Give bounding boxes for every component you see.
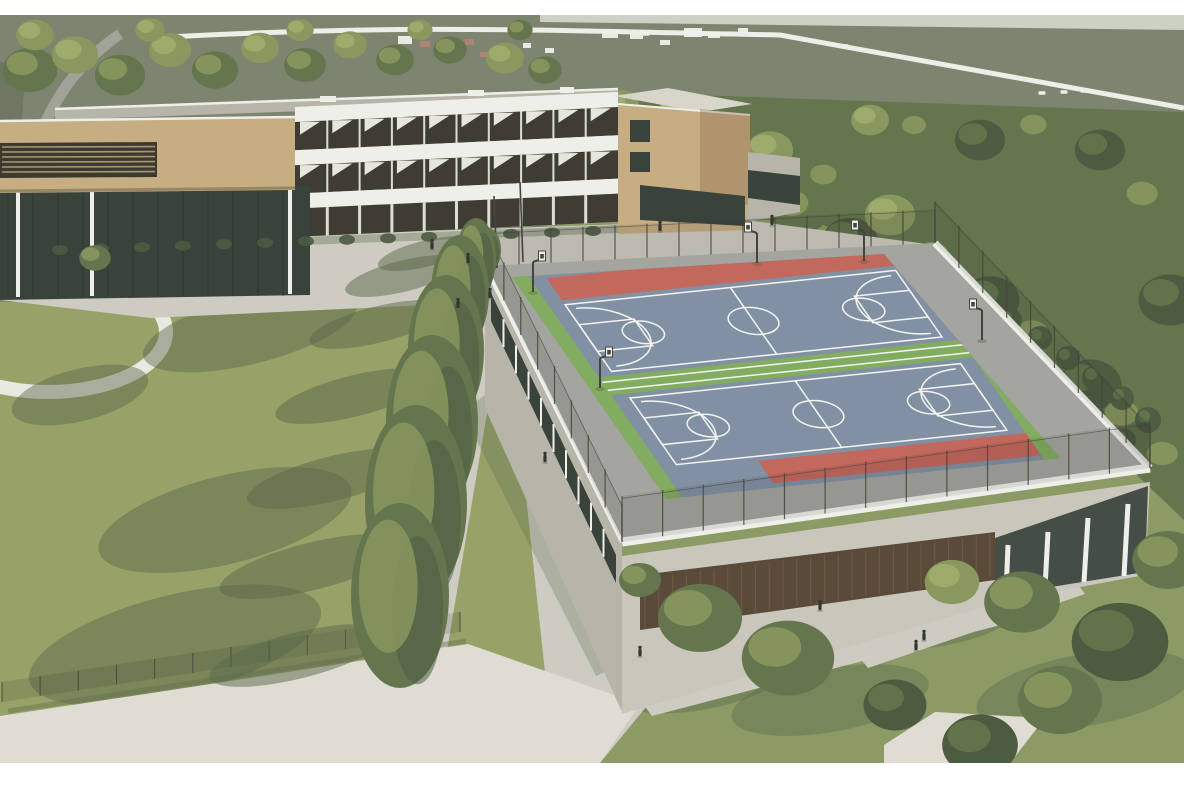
person-figure (638, 649, 641, 656)
tree-canopy-highlight (1024, 672, 1072, 708)
car (697, 32, 704, 36)
person-figure (658, 224, 661, 231)
village-building (708, 32, 720, 38)
top-margin (0, 0, 1184, 15)
tree-canopy-highlight (137, 20, 154, 33)
person-figure (770, 218, 773, 225)
person-head (456, 298, 459, 301)
person-figure (914, 643, 917, 650)
shrub (175, 241, 191, 251)
tree-canopy-highlight (1147, 442, 1178, 465)
person-shadow (637, 656, 642, 658)
person-head (466, 253, 469, 256)
village-building (523, 43, 531, 48)
tree-canopy-highlight (98, 58, 127, 80)
car (1039, 91, 1046, 95)
village-building (398, 36, 412, 44)
tree-canopy-highlight (531, 59, 550, 73)
village-building (738, 28, 748, 33)
tree-canopy-highlight (990, 577, 1033, 609)
village-building (465, 39, 474, 45)
facade-floors (295, 92, 618, 237)
car (609, 31, 616, 35)
person-head (922, 630, 925, 633)
tree-canopy-highlight (1079, 610, 1134, 651)
person-shadow (465, 263, 470, 265)
tree-canopy-highlight (379, 47, 401, 63)
tree-canopy-highlight (868, 684, 904, 711)
tree-canopy-highlight (854, 107, 876, 123)
backboard-target (971, 302, 975, 307)
tree-canopy-highlight (748, 627, 801, 667)
tree-canopy-highlight (810, 165, 836, 185)
end-block-window (630, 152, 650, 172)
person-head (638, 646, 641, 649)
person-shadow (769, 225, 774, 227)
person-shadow (542, 462, 547, 464)
person-figure (456, 301, 459, 308)
scene (0, 15, 1184, 776)
end-block-window (630, 120, 650, 142)
person-figure (818, 603, 821, 610)
person-figure (488, 291, 491, 298)
tree-canopy-highlight (287, 51, 311, 69)
person-shadow (429, 249, 434, 251)
shrub (52, 245, 68, 255)
tree-canopy-highlight (55, 40, 81, 60)
bottom-margin (0, 763, 1184, 790)
tree-canopy-highlight (1020, 115, 1046, 135)
person-figure (543, 455, 546, 462)
tree-canopy-highlight (948, 720, 991, 752)
shrub (298, 236, 314, 246)
car (643, 32, 650, 36)
render-viewport (0, 0, 1184, 790)
person-head (770, 215, 773, 218)
backboard-target (853, 223, 857, 228)
tree-canopy-highlight (1137, 536, 1178, 567)
tree-canopy-highlight (7, 52, 38, 75)
tree-canopy-highlight (244, 35, 266, 51)
backboard-target (607, 350, 611, 355)
person-shadow (455, 308, 460, 310)
village-building (660, 40, 670, 45)
shrub (216, 239, 232, 249)
tree-canopy-highlight (409, 22, 423, 33)
car (842, 44, 849, 48)
tree-canopy-highlight (19, 22, 41, 38)
person-head (543, 452, 546, 455)
tree-canopy-highlight (664, 590, 712, 626)
village-building (420, 41, 430, 47)
person-figure (430, 242, 433, 249)
campus-render (0, 0, 1184, 790)
village-building (630, 33, 643, 39)
person-figure (922, 633, 925, 640)
person-shadow (921, 640, 926, 642)
rooftop-unit (468, 90, 484, 96)
rooftop-unit (320, 96, 336, 102)
tree-canopy-highlight (750, 135, 776, 155)
car (1081, 89, 1088, 93)
tree-canopy-highlight (622, 566, 646, 584)
person-shadow (487, 298, 492, 300)
tree-canopy-highlight (489, 45, 511, 61)
tree-canopy-highlight (336, 34, 355, 48)
tree-canopy-highlight (1078, 133, 1107, 155)
shrub (339, 235, 355, 245)
tree-canopy-highlight (958, 123, 987, 145)
tree-canopy-highlight (929, 564, 960, 587)
person-head (818, 600, 821, 603)
person-head (488, 288, 491, 291)
tree-canopy-highlight (1143, 279, 1179, 306)
backboard-target (540, 254, 544, 259)
tree-canopy-highlight (436, 39, 455, 53)
person-figure (466, 256, 469, 263)
person-head (658, 221, 661, 224)
shrub (257, 238, 273, 248)
backboard-target (746, 225, 750, 230)
tree-canopy-highlight (82, 248, 100, 262)
shrub (380, 233, 396, 243)
person-head (914, 640, 917, 643)
shrub (134, 242, 150, 252)
rooftop-unit (560, 87, 574, 93)
person-shadow (817, 610, 822, 612)
village-building (545, 48, 554, 53)
tree-canopy-highlight (195, 55, 221, 75)
timber-screen (700, 109, 750, 205)
tree-canopy-highlight (902, 116, 926, 134)
car (354, 28, 361, 32)
person-shadow (657, 231, 662, 233)
tree-canopy-highlight (288, 21, 304, 33)
car (1061, 90, 1068, 94)
tree-canopy-highlight (509, 22, 523, 33)
person-head (430, 239, 433, 242)
tree-canopy-highlight (1127, 182, 1158, 205)
person-shadow (913, 650, 918, 652)
conifer-lit-side (359, 520, 418, 653)
